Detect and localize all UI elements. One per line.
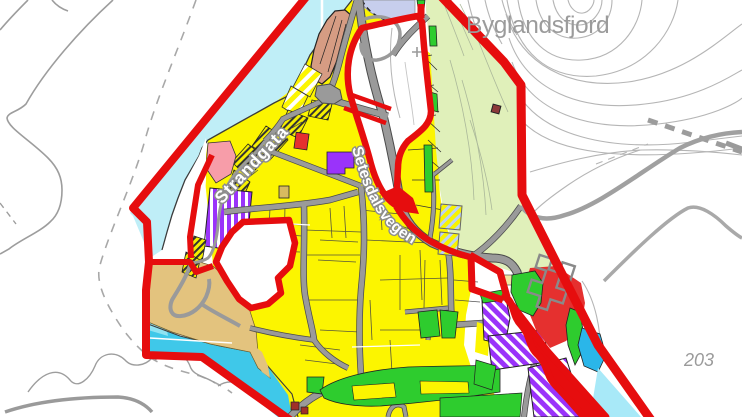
svg-text:203: 203 (683, 350, 714, 370)
svg-text:Byglandsfjord: Byglandsfjord (466, 12, 609, 39)
